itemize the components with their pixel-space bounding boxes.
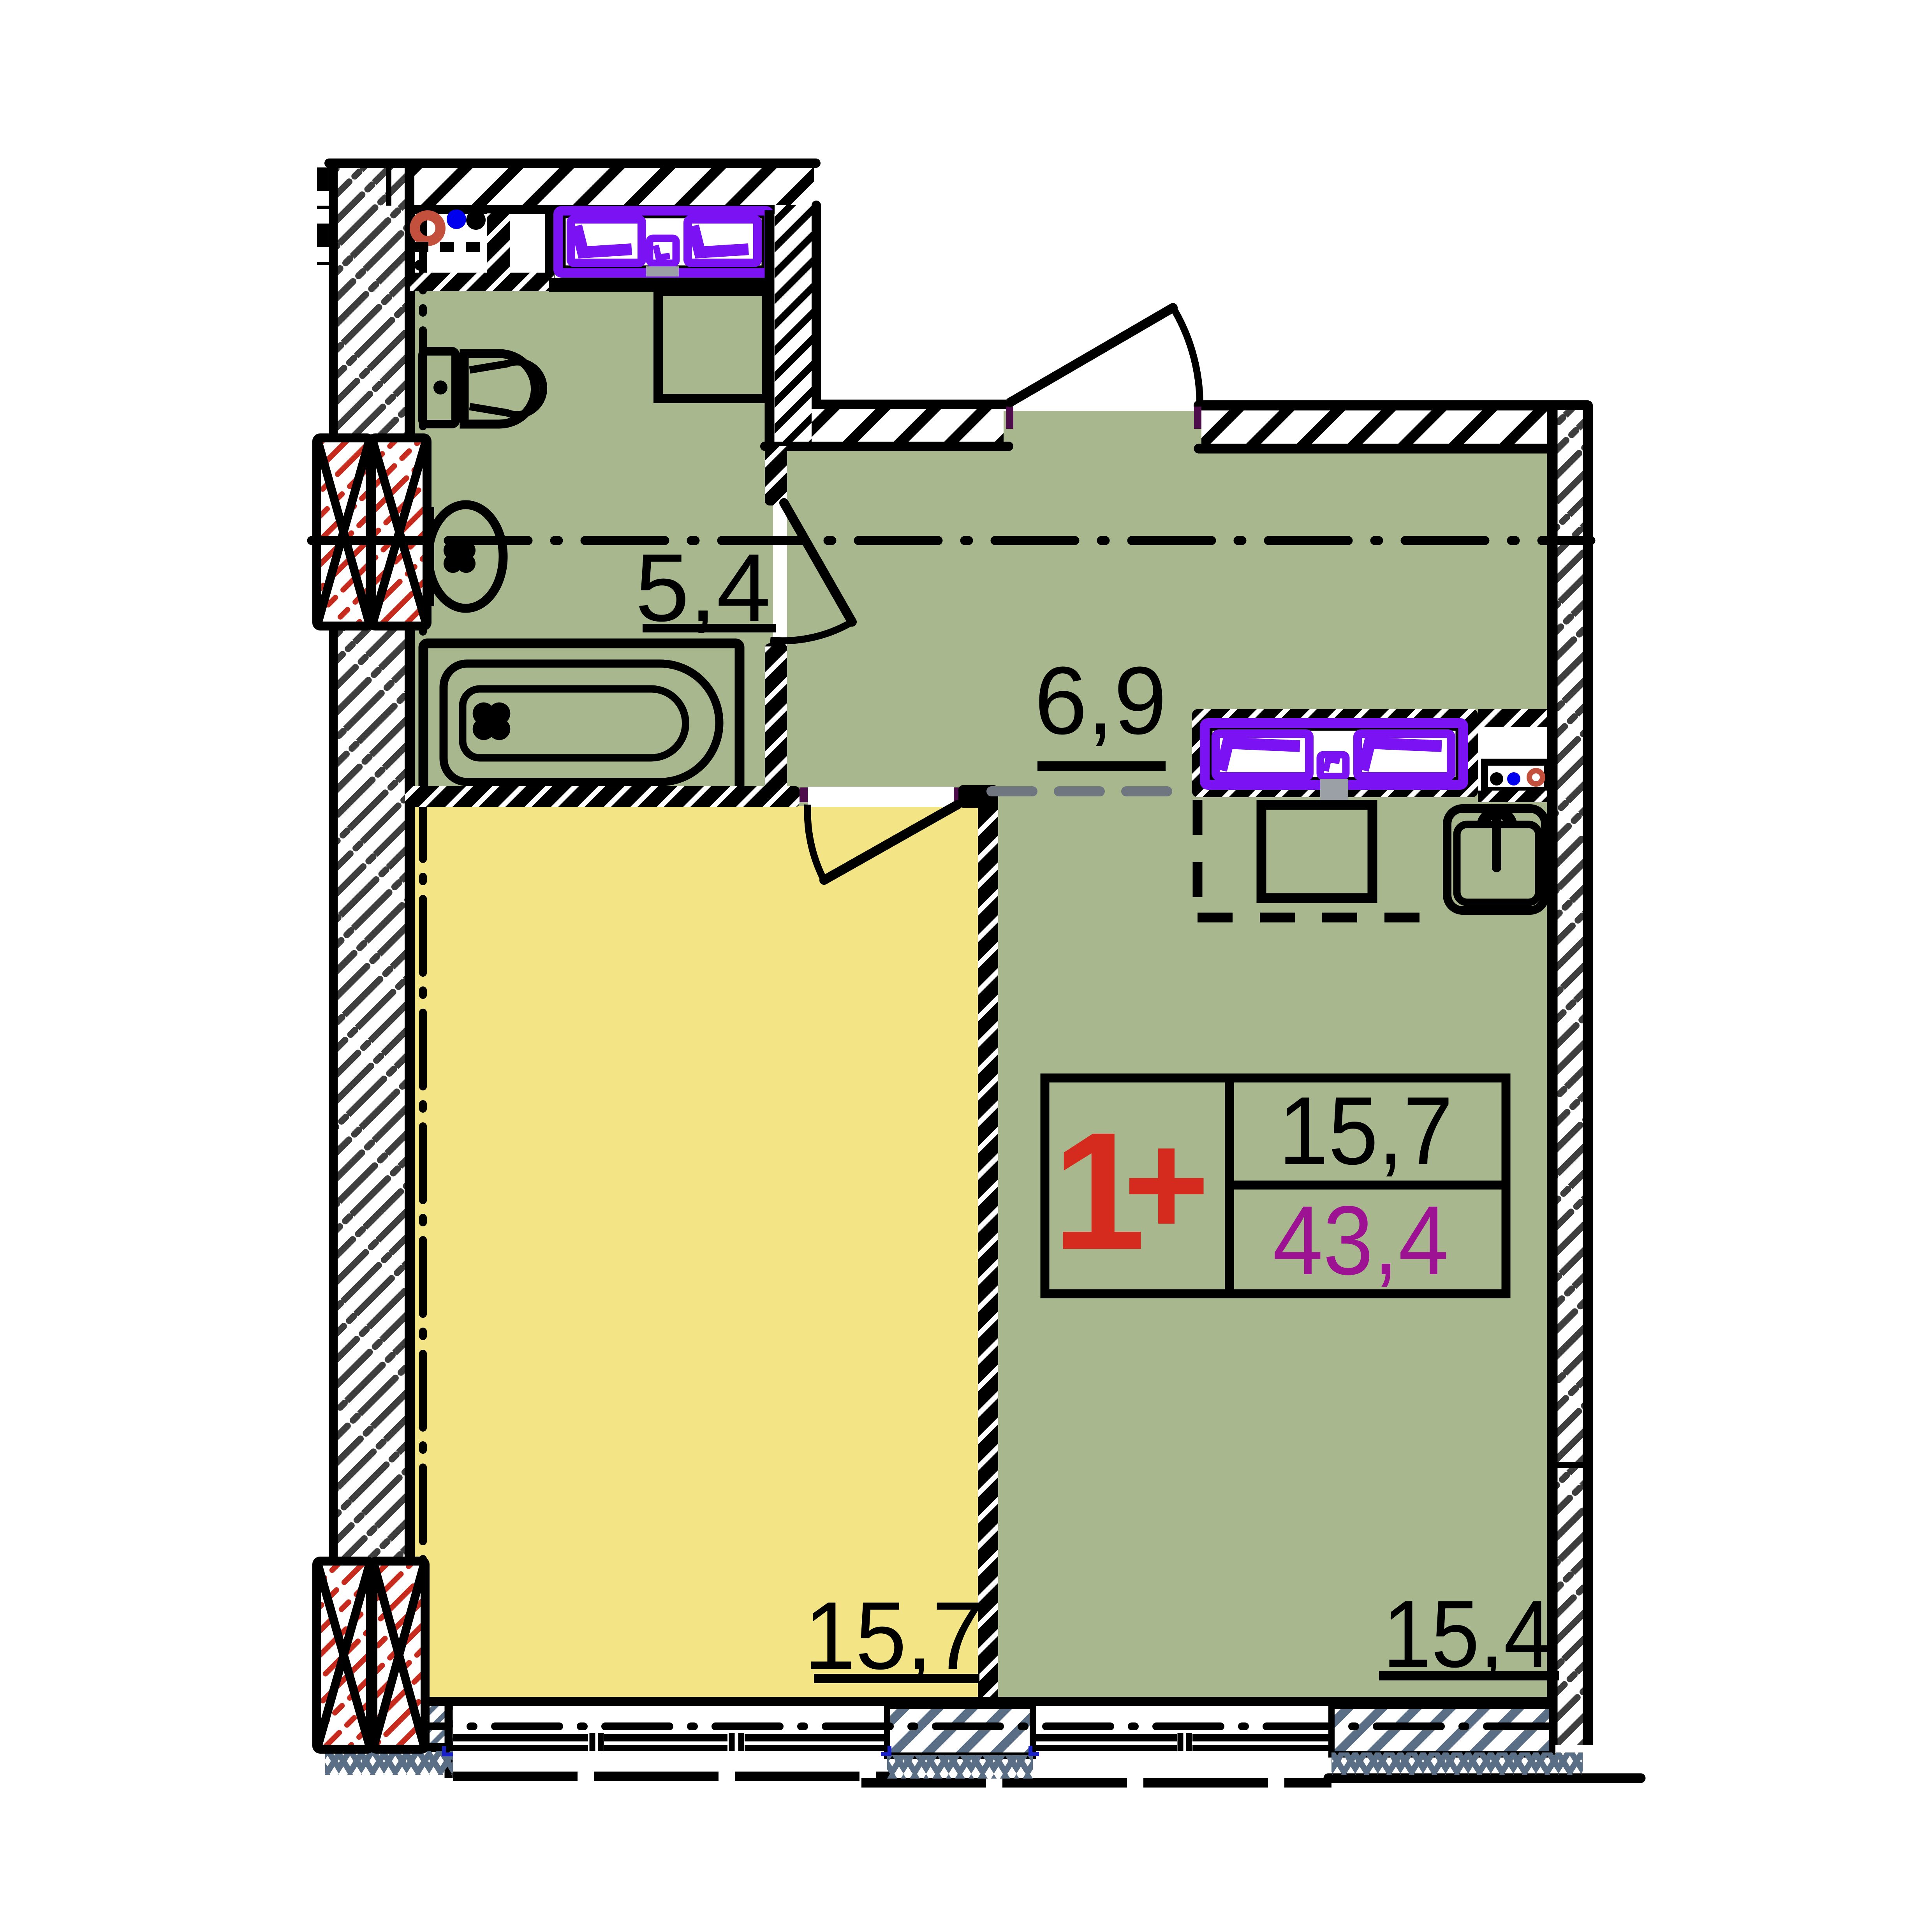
svg-text:15,4: 15,4	[1383, 1580, 1552, 1687]
svg-text:43,4: 43,4	[1273, 1186, 1449, 1295]
svg-text:15,7: 15,7	[1279, 1076, 1453, 1185]
svg-text:+: +	[1123, 1101, 1210, 1267]
svg-text:15,7: 15,7	[804, 1582, 983, 1689]
svg-text:6,9: 6,9	[1034, 647, 1167, 754]
